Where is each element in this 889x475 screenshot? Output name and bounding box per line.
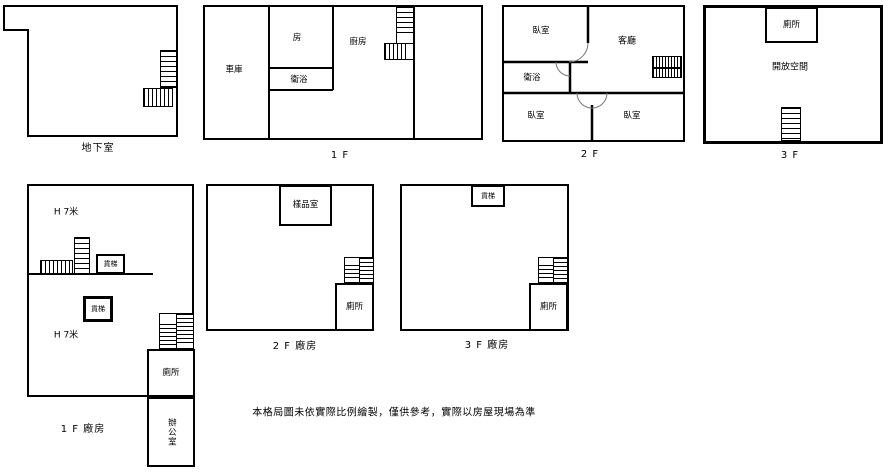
1f-walls <box>203 5 484 145</box>
basement-staircase-lower-run <box>143 88 173 107</box>
factory-3f-u-staircase-left-run <box>539 258 554 282</box>
room-label-toilet-factory-1f: 廁所 <box>162 368 179 379</box>
room-label-garage: 車庫 <box>225 66 242 75</box>
room-toilet-3f: 廁所 <box>765 7 818 43</box>
room-toilet-factory-1f: 廁所 <box>147 349 195 397</box>
1f-staircase-upper-run <box>396 6 414 44</box>
floor-label-1f: 1 F <box>331 151 349 161</box>
plan-factory-1f: 貨梯 貨梯 廁所 辦公室 H 7米 H 7米 1 F 廠房 <box>27 184 195 474</box>
room-sample: 樣品室 <box>279 185 332 226</box>
floor-label-3f: 3 F <box>781 151 799 161</box>
3f-staircase <box>781 107 801 141</box>
room-label-bedroom-top: 臥室 <box>532 27 549 36</box>
room-label-sample: 樣品室 <box>293 200 319 211</box>
floor-label-basement: 地下室 <box>82 144 115 154</box>
freight-elevator-upper: 貨梯 <box>96 254 125 274</box>
factory-2f-u-staircase-right-run <box>360 258 374 282</box>
room-label-toilet-factory-2f: 廁所 <box>346 302 363 313</box>
plan-basement: 地下室 <box>3 5 178 165</box>
room-label-bath-1f: 衛浴 <box>290 76 307 85</box>
door-arcs <box>556 43 607 108</box>
plan-1f: 車庫 房 衛浴 廚房 1 F <box>203 5 483 165</box>
floor-label-factory-1f: 1 F 廠房 <box>61 425 105 435</box>
room-toilet-factory-2f: 廁所 <box>335 283 374 331</box>
plan-factory-3f: 貨梯 廁所 3 F 廠房 <box>400 184 569 359</box>
basement-walls <box>3 5 179 145</box>
factory-1f-u-staircase-left-run <box>160 314 177 348</box>
factory-3f-u-staircase-right-run <box>554 258 568 282</box>
room-label-bath-2f: 衛浴 <box>523 74 540 83</box>
height-label-bottom: H 7米 <box>54 332 78 341</box>
room-toilet-factory-3f: 廁所 <box>529 283 568 331</box>
2f-staircase-lower-run <box>653 67 681 77</box>
factory-1f-staircase-upper-run <box>74 237 90 274</box>
factory-1f-staircase-lower-run <box>40 260 73 274</box>
factory-1f-u-staircase-right-run <box>177 314 193 348</box>
room-label-kitchen: 廚房 <box>349 38 366 47</box>
room-label-bedroom-bottom-right: 臥室 <box>623 112 640 121</box>
room-label-toilet-factory-3f: 廁所 <box>540 302 557 313</box>
room-label-bedroom-bottom-left: 臥室 <box>527 112 544 121</box>
factory-2f-u-staircase <box>344 257 374 283</box>
floor-label-factory-3f: 3 F 廠房 <box>465 341 509 351</box>
1f-staircase-lower-run <box>384 43 414 60</box>
room-label-living-room: 客廳 <box>618 38 636 47</box>
room-label-office: 辦公室 <box>166 418 177 447</box>
plan-3f: 廁所 開放空間 3 F <box>703 5 883 165</box>
freight-elevator-lower-label: 貨梯 <box>91 305 105 314</box>
freight-elevator-3f: 貨梯 <box>471 185 505 207</box>
floor-plan-sheet: 地下室 車庫 房 衛浴 廚房 1 F <box>0 0 889 475</box>
floor-label-2f: 2 F <box>581 150 599 160</box>
disclaimer-text: 本格局圖未依實際比例繪製，僅供參考，實際以房屋現場為準 <box>252 404 536 419</box>
factory-3f-u-staircase <box>538 257 568 283</box>
plan-2f: 臥室 客廳 衛浴 臥室 臥室 2 F <box>502 5 685 165</box>
basement-staircase-upper-run <box>160 50 177 88</box>
factory-1f-u-staircase <box>159 313 194 349</box>
height-label-top: H 7米 <box>54 209 78 218</box>
freight-elevator-upper-label: 貨梯 <box>104 260 118 269</box>
2f-staircase-upper-run <box>653 57 681 67</box>
room-label-room: 房 <box>293 34 302 43</box>
floor-label-factory-2f: 2 F 廠房 <box>273 342 317 352</box>
plan-factory-2f: 樣品室 廁所 2 F 廠房 <box>206 184 374 359</box>
room-label-open-space: 開放空間 <box>772 64 808 73</box>
freight-elevator-3f-label: 貨梯 <box>481 192 495 201</box>
freight-elevator-lower: 貨梯 <box>83 296 113 322</box>
factory-2f-u-staircase-left-run <box>345 258 360 282</box>
room-label-toilet-3f: 廁所 <box>783 20 800 31</box>
2f-staircase <box>652 56 682 78</box>
room-office: 辦公室 <box>147 397 195 467</box>
